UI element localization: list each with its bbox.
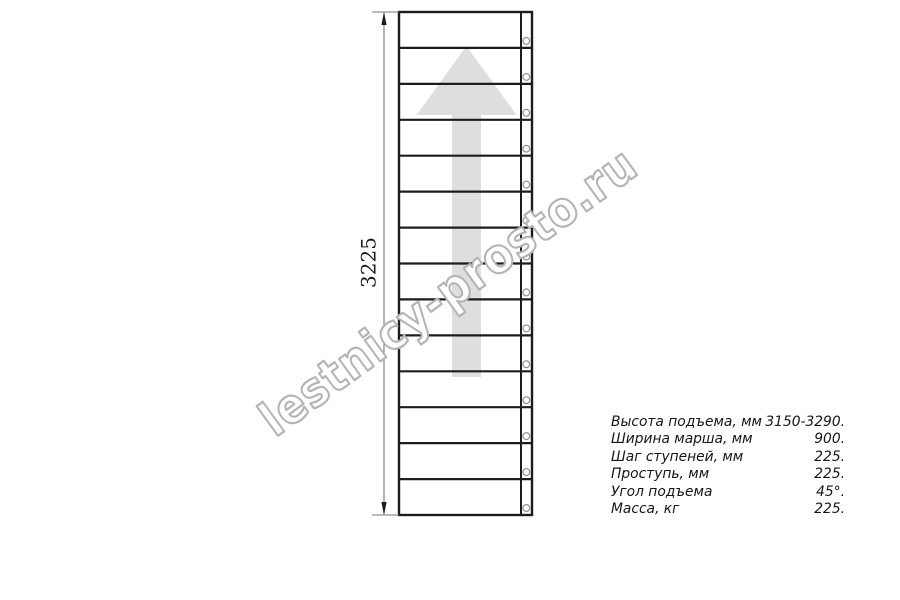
fastener-circle	[523, 469, 530, 476]
fastener-circle	[523, 181, 530, 188]
fastener-circle	[523, 109, 530, 116]
spec-value: 225.	[814, 501, 845, 518]
spec-label: Шаг ступеней, мм	[611, 449, 743, 466]
spec-row: Масса, кг 225.	[611, 501, 845, 518]
spec-row: Проступь, мм 225.	[611, 466, 845, 483]
height-dimension: 3225	[357, 12, 400, 515]
spec-value: 225.	[814, 449, 845, 466]
spec-row: Угол подъема 45°.	[611, 484, 845, 501]
specs-table: Высота подъема, мм 3150-3290. Ширина мар…	[611, 414, 845, 518]
dimension-label: 3225	[357, 237, 381, 288]
spec-label: Масса, кг	[611, 501, 679, 518]
fastener-circle	[523, 361, 530, 368]
fastener-circle	[523, 325, 530, 332]
fastener-circle	[523, 433, 530, 440]
technical-drawing-page: 3225 lestnicy-prosto.ru Высота подъема, …	[0, 0, 900, 600]
fastener-circles	[523, 38, 530, 512]
spec-value: 225.	[814, 466, 845, 483]
spec-row: Высота подъема, мм 3150-3290.	[611, 414, 845, 431]
fastener-circle	[523, 397, 530, 404]
fastener-circle	[523, 74, 530, 81]
spec-label: Проступь, мм	[611, 466, 709, 483]
spec-value: 3150-3290.	[765, 414, 845, 431]
watermark-text: lestnicy-prosto.ru	[249, 137, 648, 448]
spec-label: Угол подъема	[611, 484, 712, 501]
fastener-circle	[523, 145, 530, 152]
fastener-circle	[523, 38, 530, 45]
spec-label: Высота подъема, мм	[611, 414, 762, 431]
spec-row: Шаг ступеней, мм 225.	[611, 449, 845, 466]
dimension-arrowhead-down-icon	[381, 502, 386, 515]
fastener-circle	[523, 289, 530, 296]
spec-value: 900.	[814, 431, 845, 448]
spec-label: Ширина марша, мм	[611, 431, 753, 448]
fastener-circle	[523, 505, 530, 512]
spec-value: 45°.	[816, 484, 845, 501]
spec-row: Ширина марша, мм 900.	[611, 431, 845, 448]
dimension-arrowhead-up-icon	[381, 12, 386, 25]
